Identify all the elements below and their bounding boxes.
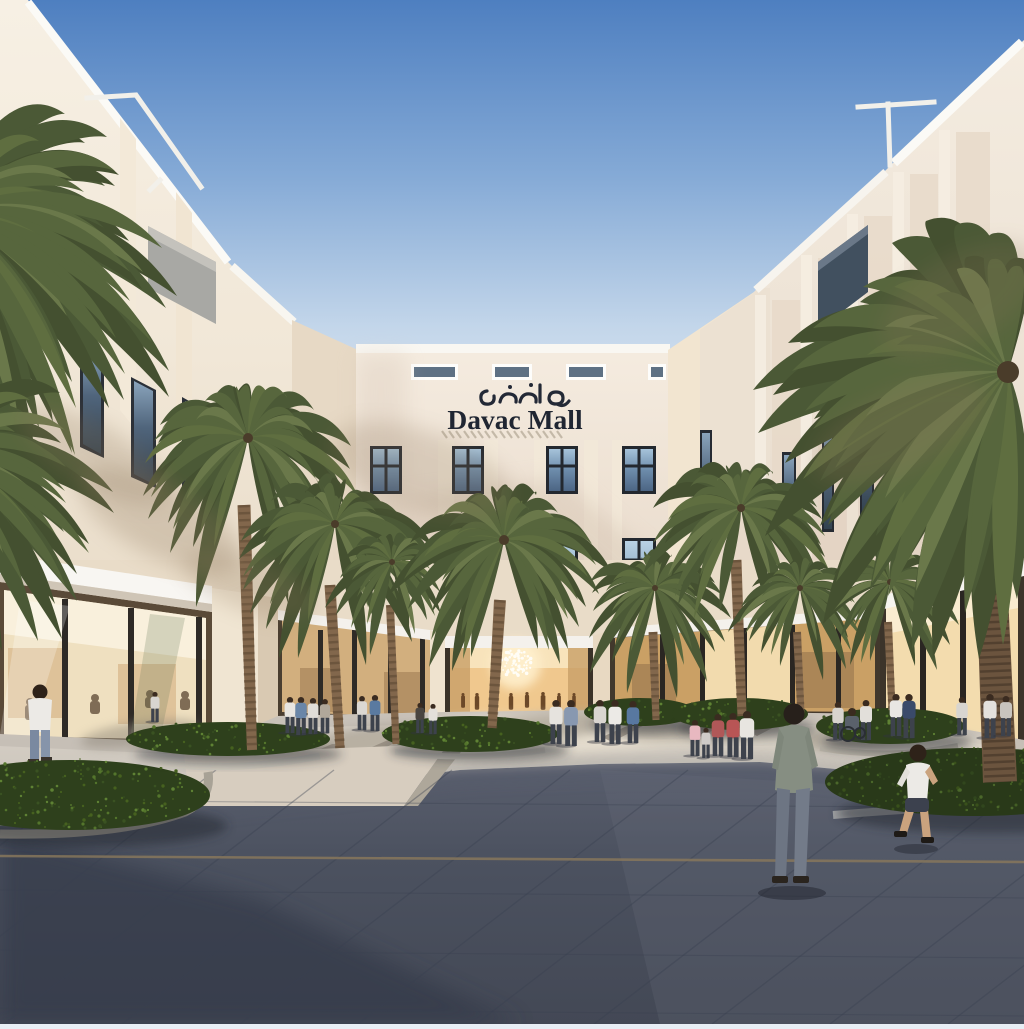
svg-text:Davac Mall: Davac Mall <box>447 404 583 435</box>
